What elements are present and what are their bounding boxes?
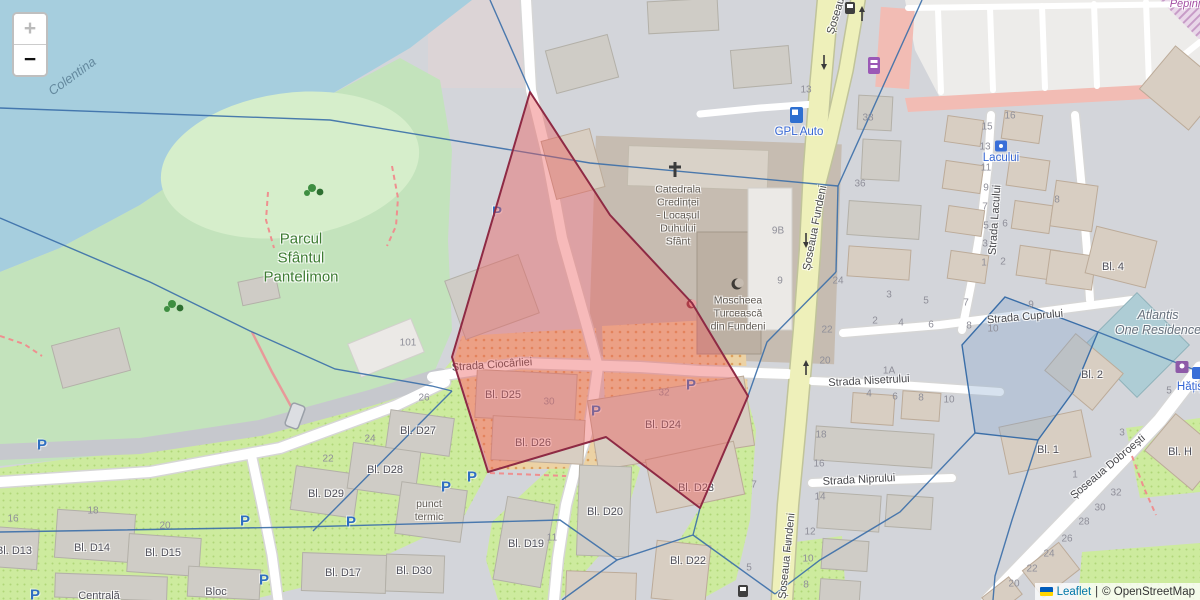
- building-label: Bloc: [205, 586, 226, 598]
- housenumber-label: 20: [819, 356, 830, 367]
- parking-icon: P: [686, 377, 696, 394]
- place-label: Parcul Sfântul Pantelimon: [263, 230, 338, 287]
- housenumber-label: 18: [87, 506, 98, 517]
- housenumber-label: 9B: [772, 226, 784, 237]
- housenumber-label: 28: [1078, 517, 1089, 528]
- parking-icon: P: [240, 513, 250, 530]
- housenumber-label: 9: [777, 276, 783, 287]
- building-label: Bl. D26: [515, 437, 551, 449]
- housenumber-label: 22: [821, 325, 832, 336]
- housenumber-label: 20: [1008, 579, 1019, 590]
- housenumber-label: 10: [802, 554, 813, 565]
- street-label: Șoseaua Fundeni: [801, 185, 829, 272]
- housenumber-label: 38: [862, 113, 873, 124]
- place-label: GPL Auto: [775, 126, 824, 138]
- housenumber-label: 24: [832, 276, 843, 287]
- housenumber-label: 2: [1000, 257, 1006, 268]
- housenumber-label: 1: [981, 258, 987, 269]
- housenumber-label: 3: [1119, 428, 1125, 439]
- place-label: Atlantis One Residence: [1115, 308, 1200, 338]
- housenumber-label: 20: [159, 521, 170, 532]
- street-label: Strada Lacului: [987, 185, 1004, 256]
- housenumber-label: 5: [983, 221, 989, 232]
- housenumber-label: 9: [1028, 300, 1034, 311]
- parking-icon: P: [346, 514, 356, 531]
- housenumber-label: 12: [804, 527, 815, 538]
- parking-icon: P: [467, 469, 477, 486]
- zoom-in-button[interactable]: +: [14, 14, 46, 45]
- housenumber-label: 4: [866, 389, 872, 400]
- housenumber-label: 32: [1110, 488, 1121, 499]
- map-label-layer: Strada CiocârlieiStrada NisetruluiStrada…: [0, 0, 1200, 600]
- housenumber-label: 26: [418, 393, 429, 404]
- building-label: Bl. D19: [508, 538, 544, 550]
- housenumber-label: 5: [746, 563, 752, 574]
- housenumber-label: 5: [1166, 386, 1172, 397]
- housenumber-label: 6: [892, 392, 898, 403]
- housenumber-label: 30: [1094, 503, 1105, 514]
- housenumber-label: 30: [543, 397, 554, 408]
- housenumber-label: 22: [1026, 564, 1037, 575]
- attribution-separator: |: [1095, 586, 1098, 598]
- housenumber-label: 1A: [883, 366, 895, 377]
- housenumber-label: 101: [400, 338, 417, 349]
- housenumber-label: 24: [1043, 549, 1054, 560]
- housenumber-label: 7: [982, 202, 988, 213]
- housenumber-label: 22: [322, 454, 333, 465]
- zoom-out-button[interactable]: −: [14, 45, 46, 75]
- housenumber-label: 3: [982, 239, 988, 250]
- building-label: Bl. D27: [400, 425, 436, 437]
- housenumber-label: 7: [751, 480, 757, 491]
- ukraine-flag-icon: [1040, 587, 1053, 596]
- leaflet-link[interactable]: Leaflet: [1057, 586, 1092, 598]
- building-label: Bl. D14: [74, 542, 110, 554]
- building-label: Centrală: [78, 590, 120, 600]
- building-label: Bl. D30: [396, 565, 432, 577]
- housenumber-label: 14: [814, 492, 825, 503]
- place-label: Hățiș: [1177, 381, 1200, 393]
- housenumber-label: 11: [547, 533, 557, 544]
- street-label: Strada Nisetrului: [828, 373, 910, 389]
- building-label: Bl. D17: [325, 567, 361, 579]
- osm-copyright-link[interactable]: © OpenStreetMap: [1102, 586, 1195, 598]
- housenumber-label: 15: [981, 122, 992, 133]
- building-label: Bl. D15: [145, 547, 181, 559]
- place-label: Colentina: [45, 54, 98, 98]
- zoom-control: + −: [12, 12, 48, 77]
- housenumber-label: 3: [886, 290, 892, 301]
- housenumber-label: 13: [979, 142, 990, 153]
- housenumber-label: 9: [983, 183, 989, 194]
- housenumber-label: 32: [658, 388, 669, 399]
- housenumber-label: 5: [923, 296, 929, 307]
- street-label: Șoseaua Dobroești: [1068, 432, 1147, 501]
- place-label: Lacului: [983, 152, 1019, 164]
- street-label: Șoseaua Fundeni: [777, 512, 798, 599]
- building-label: Bl. D24: [645, 419, 681, 431]
- housenumber-label: 4: [898, 318, 904, 329]
- place-label: punct termic: [415, 498, 444, 524]
- place-label: Moscheea Turcească din Fundeni: [711, 295, 766, 334]
- attribution-bar: Leaflet | © OpenStreetMap: [1035, 583, 1200, 600]
- housenumber-label: 26: [1061, 534, 1072, 545]
- housenumber-label: 10: [987, 324, 998, 335]
- housenumber-label: 24: [364, 434, 375, 445]
- building-label: Bl. D23: [678, 482, 714, 494]
- housenumber-label: 6: [1002, 219, 1008, 230]
- housenumber-label: 6: [928, 320, 934, 331]
- building-label: Bl. D20: [587, 506, 623, 518]
- building-label: Bl. 2: [1081, 369, 1103, 381]
- map-canvas[interactable]: Strada CiocârlieiStrada NisetruluiStrada…: [0, 0, 1200, 600]
- parking-icon: P: [492, 204, 502, 221]
- parking-icon: P: [591, 403, 601, 420]
- building-label: Bl. D25: [485, 389, 521, 401]
- street-label: Strada Cuprului: [986, 308, 1063, 327]
- building-label: Bl. 1: [1037, 444, 1059, 456]
- place-label: Pepini: [1170, 0, 1200, 10]
- housenumber-label: 10: [943, 395, 954, 406]
- parking-icon: P: [259, 572, 269, 589]
- building-label: Bl. D13: [0, 545, 32, 557]
- parking-icon: P: [30, 587, 40, 600]
- housenumber-label: 16: [7, 514, 18, 525]
- street-label: Strada Ciocârliei: [451, 356, 532, 374]
- housenumber-label: 8: [1054, 195, 1060, 206]
- building-label: Bl. D28: [367, 464, 403, 476]
- housenumber-label: 13: [800, 85, 811, 96]
- building-label: Bl. D22: [670, 555, 706, 567]
- housenumber-label: 7: [963, 298, 969, 309]
- housenumber-label: 18: [815, 430, 826, 441]
- housenumber-label: 2: [872, 316, 878, 327]
- street-label: Strada Niprului: [822, 472, 895, 488]
- housenumber-label: 16: [813, 459, 824, 470]
- building-label: Bl. D29: [308, 488, 344, 500]
- housenumber-label: 8: [966, 321, 972, 332]
- parking-icon: P: [37, 437, 47, 454]
- parking-icon: P: [441, 479, 451, 496]
- street-label: Șoseau: [825, 0, 847, 36]
- housenumber-label: 16: [1004, 111, 1015, 122]
- housenumber-label: 8: [803, 580, 809, 591]
- housenumber-label: 36: [854, 179, 865, 190]
- housenumber-label: 1: [1072, 470, 1078, 481]
- housenumber-label: 11: [981, 163, 991, 174]
- building-label: Bl. H: [1168, 446, 1192, 458]
- housenumber-label: 8: [918, 393, 924, 404]
- place-label: Catedrala Credinței - Locașul Duhului Sf…: [655, 184, 701, 249]
- building-label: Bl. 4: [1102, 261, 1124, 273]
